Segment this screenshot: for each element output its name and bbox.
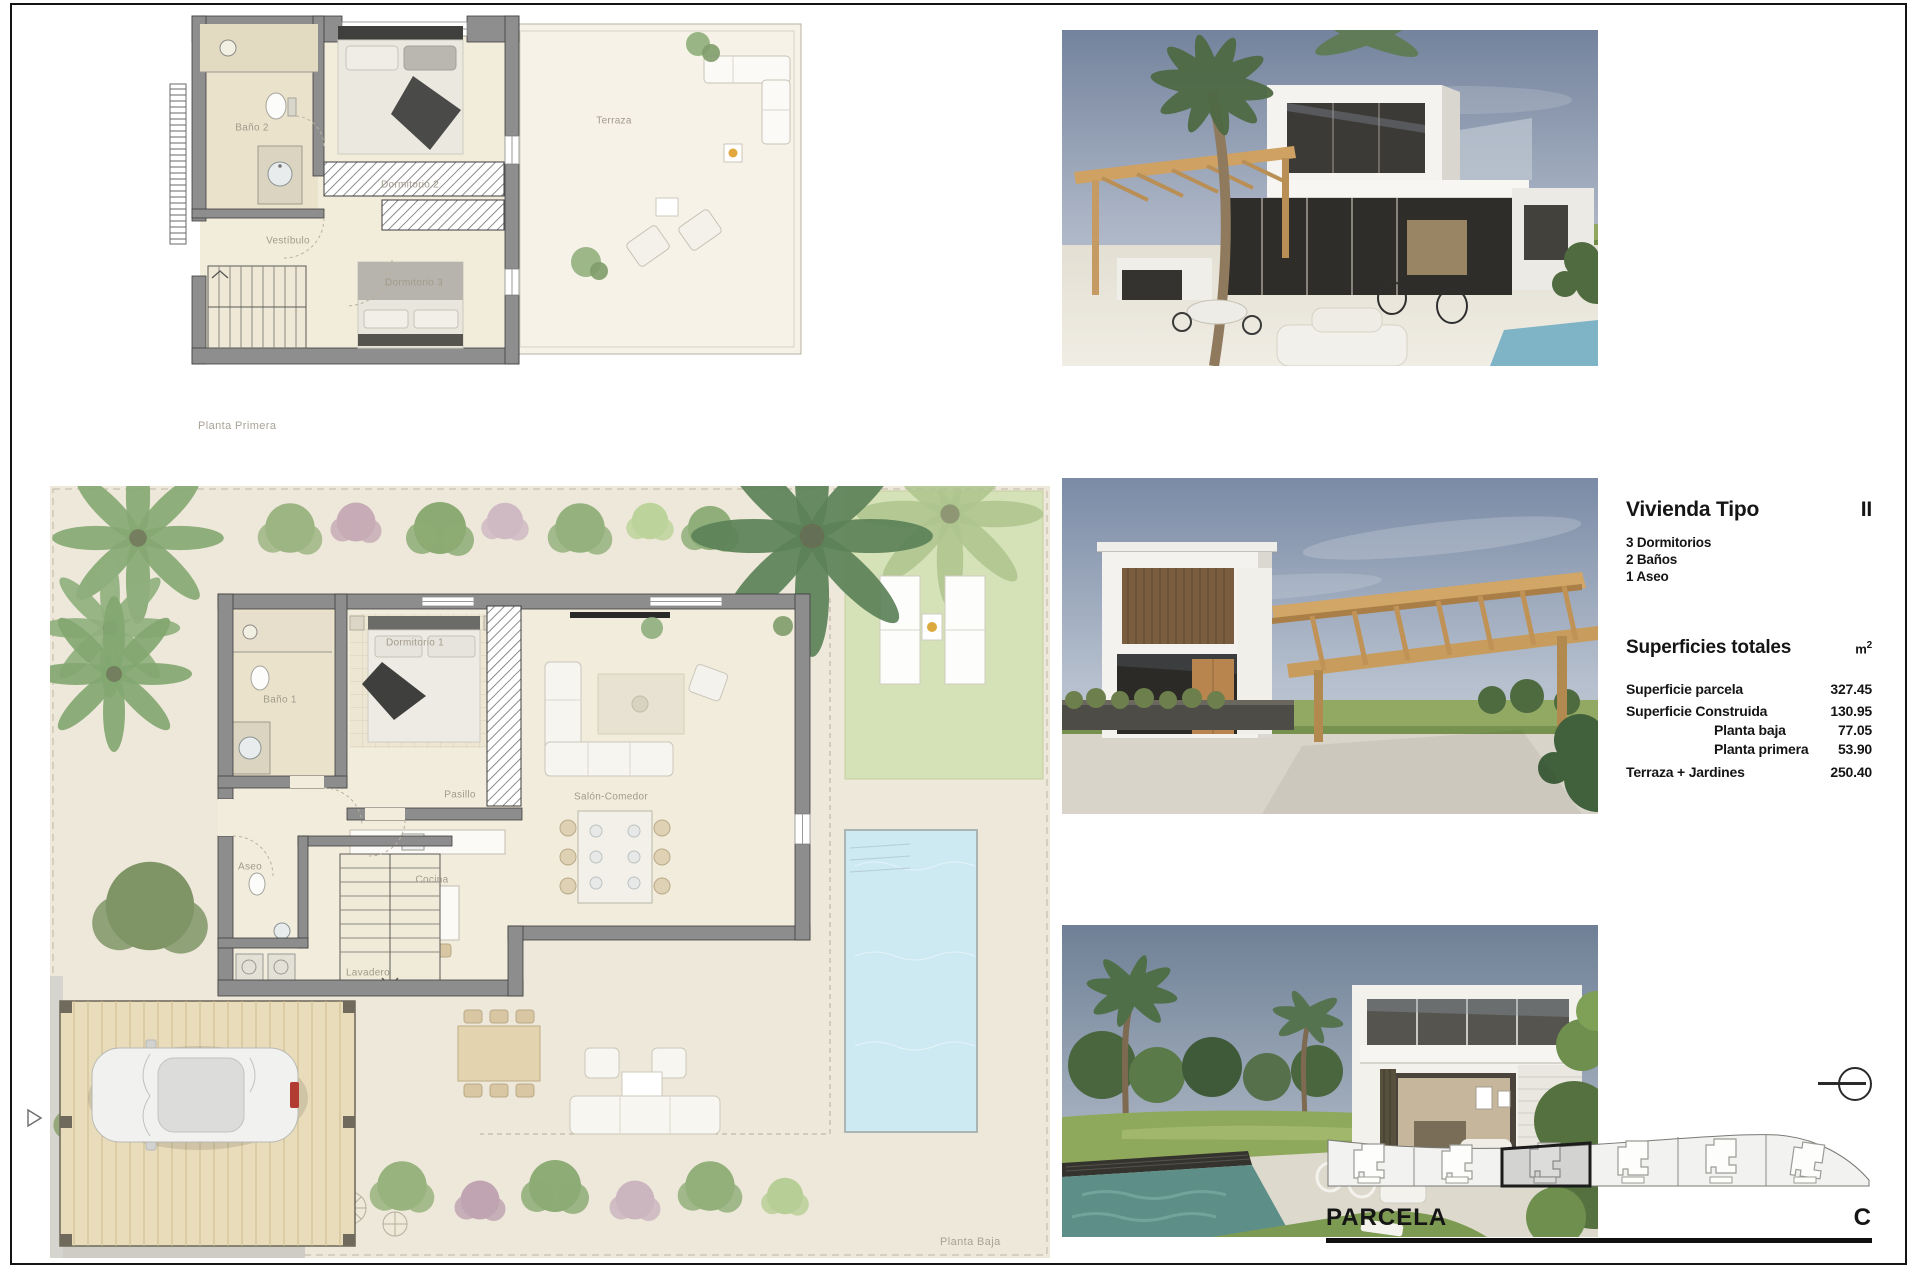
stairs (208, 266, 306, 348)
surface-row-planta-baja: Planta baja77.05 (1626, 722, 1872, 738)
caption-planta-baja: Planta Baja (940, 1236, 1001, 1248)
first-floor-plan-drawing (158, 14, 808, 424)
parcel-underline (1326, 1238, 1872, 1243)
dwelling-type-title: Vivienda Tipo (1626, 498, 1759, 522)
room-label-dormitorio2: Dormitorio 2 (381, 180, 439, 191)
render-1-illustration (1062, 30, 1598, 366)
room-label-lavadero: Lavadero (346, 968, 390, 979)
parcel-block: PARCELA C (1326, 1066, 1872, 1251)
render-photo-exterior-2 (1062, 478, 1598, 814)
wardrobe-dorm1 (487, 606, 521, 806)
room-label-salon: Salón-Comedor (574, 792, 648, 803)
feature-bathrooms: 2 Baños (1626, 551, 1872, 568)
terrace-side-table (724, 144, 742, 162)
bed-dormitorio2 (338, 26, 463, 154)
surface-row-parcela: Superficie parcela327.45 (1626, 681, 1872, 697)
outdoor-dining (458, 1010, 540, 1097)
room-label-cocina: Cocina (416, 875, 449, 886)
room-label-dormitorio1: Dormitorio 1 (386, 638, 444, 649)
room-label-vestibulo: Vestíbulo (266, 236, 310, 247)
car (88, 1040, 308, 1150)
room-label-aseo: Aseo (238, 862, 262, 873)
surface-row-terraza: Terraza + Jardines250.40 (1626, 764, 1872, 780)
room-label-terraza: Terraza (596, 116, 631, 127)
entry-arrow-icon (26, 1108, 44, 1128)
pool (845, 830, 977, 1132)
caption-planta-primera: Planta Primera (198, 420, 276, 432)
highlighted-parcel (1502, 1143, 1590, 1186)
site-plan-strip (1326, 1122, 1872, 1196)
surface-row-construida: Superficie Construida130.95 (1626, 703, 1872, 719)
info-panel: Vivienda Tipo II 3 Dormitorios 2 Baños 1… (1626, 498, 1872, 786)
first-floor-plan: Baño 2 Vestíbulo Dormitorio 2 Dormitorio… (158, 14, 808, 424)
north-compass-icon (1816, 1066, 1876, 1102)
brochure-page: Baño 2 Vestíbulo Dormitorio 2 Dormitorio… (0, 0, 1920, 1280)
surfaces-unit: m2 (1855, 640, 1872, 656)
feature-list: 3 Dormitorios 2 Baños 1 Aseo (1626, 534, 1872, 585)
bed-dormitorio1 (350, 616, 498, 742)
ground-floor-plan: Baño 1 Dormitorio 1 Pasillo Salón-Comedo… (50, 486, 1050, 1261)
terrace-area (513, 24, 801, 354)
render-2-illustration (1062, 478, 1598, 814)
stair-railing (170, 84, 186, 244)
room-label-bano1: Baño 1 (263, 695, 297, 706)
bed-dormitorio3 (358, 262, 463, 348)
surface-table: Superficie parcela327.45 Superficie Cons… (1626, 681, 1872, 780)
render-photo-exterior-1 (1062, 30, 1598, 366)
feature-toilets: 1 Aseo (1626, 568, 1872, 585)
ground-floor-plan-drawing (50, 486, 1050, 1261)
feature-bedrooms: 3 Dormitorios (1626, 534, 1872, 551)
surfaces-title: Superficies totales (1626, 637, 1791, 659)
room-label-pasillo: Pasillo (444, 790, 476, 801)
dwelling-type-code: II (1861, 498, 1872, 522)
room-label-dormitorio3: Dormitorio 3 (385, 278, 443, 289)
interior-glow (1407, 220, 1467, 275)
parcel-label: PARCELA (1326, 1204, 1447, 1232)
parcel-code: C (1854, 1204, 1872, 1232)
room-label-bano2: Baño 2 (235, 123, 269, 134)
surface-row-planta-primera: Planta primera53.90 (1626, 741, 1872, 757)
